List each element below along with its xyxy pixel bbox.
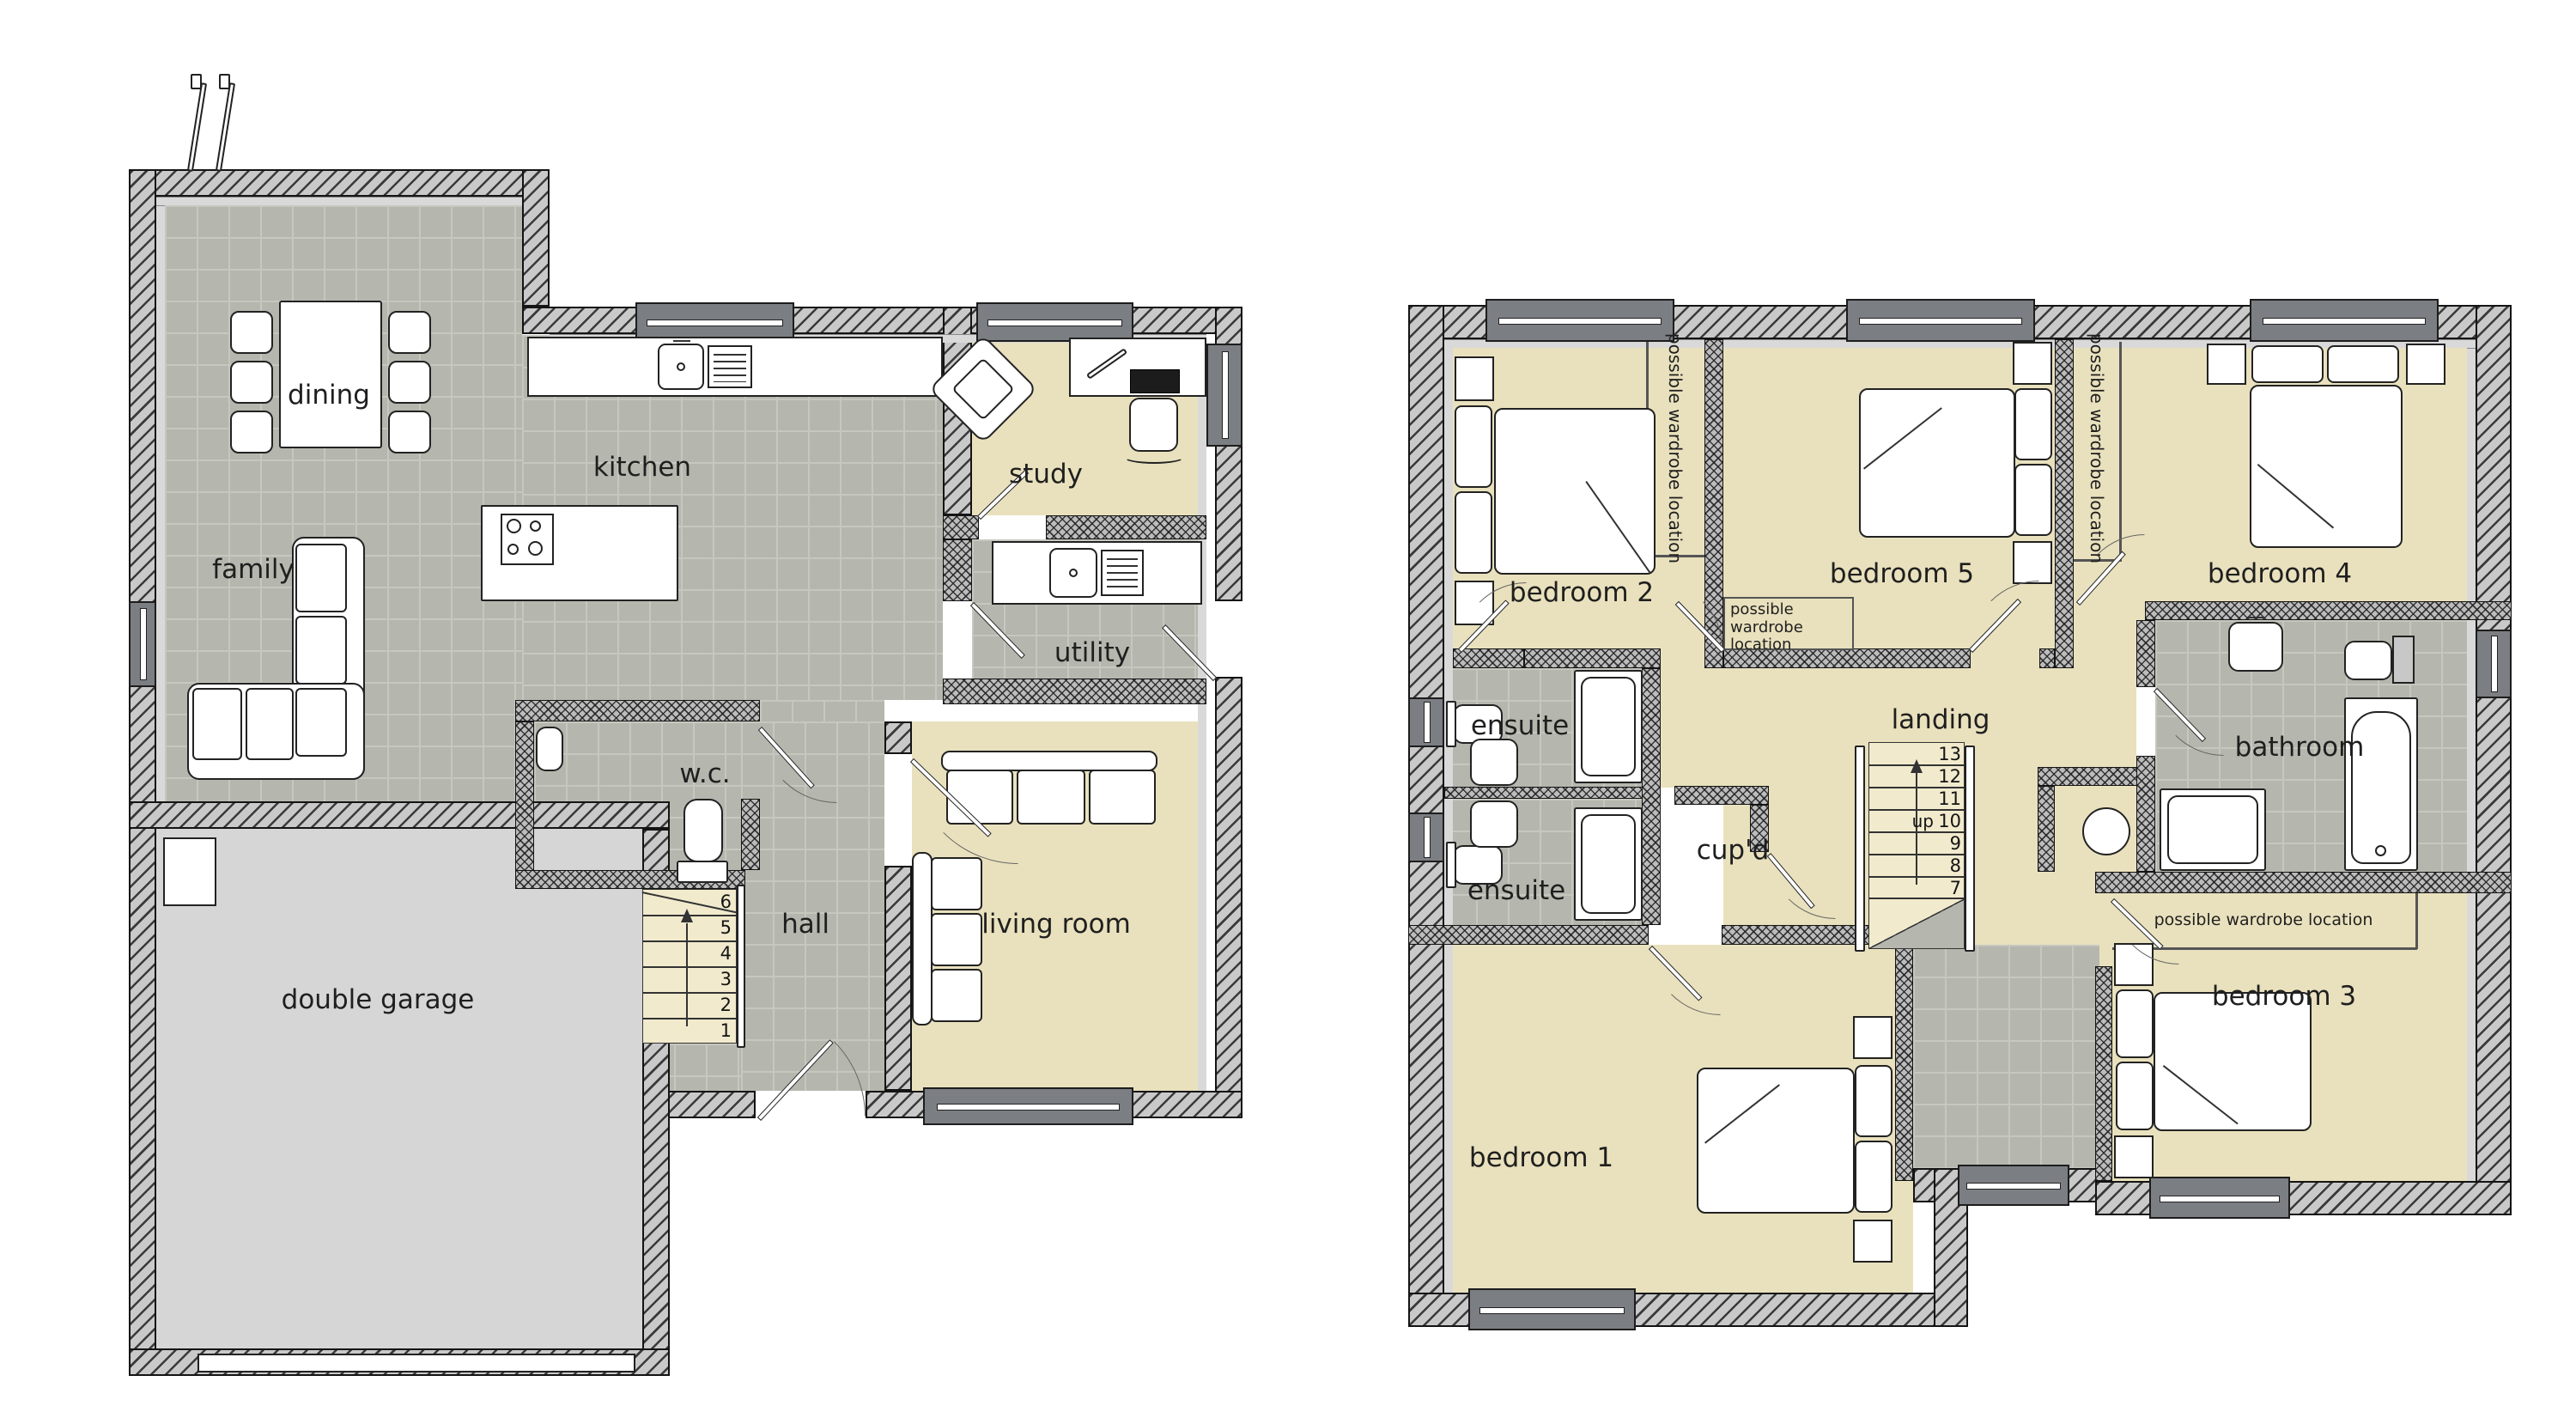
- hob-burner: [507, 519, 521, 533]
- bedside-table: [1455, 356, 1494, 401]
- window: [923, 1087, 1133, 1125]
- wall: [2136, 620, 2155, 687]
- wall: [2476, 305, 2512, 1215]
- bed-pillow: [1455, 405, 1492, 488]
- room-label-family: family: [212, 554, 295, 585]
- toilet-cistern: [2392, 636, 2415, 684]
- hob-burner: [528, 541, 543, 556]
- window: [1408, 697, 1444, 747]
- bath-drain: [2375, 845, 2386, 856]
- stair-step: [642, 940, 737, 942]
- shower-tray: [1581, 814, 1636, 914]
- window: [2476, 630, 2512, 698]
- hob-burner: [507, 544, 519, 555]
- stair-arrow: [686, 923, 688, 1026]
- room-label-bedroom-2: bedroom 2: [1510, 577, 1654, 608]
- bed-pillow: [2327, 345, 2399, 383]
- wall: [2095, 872, 2512, 893]
- toilet-cistern: [1446, 701, 1456, 747]
- sofa-cushion: [295, 544, 347, 612]
- bedside-table: [1853, 1220, 1893, 1263]
- stair-arrow-head: [681, 909, 693, 922]
- stair-number: 3: [720, 969, 732, 989]
- toilet: [2344, 641, 2392, 680]
- wall-lining: [1198, 343, 1206, 1091]
- wall: [129, 801, 670, 829]
- basin-tap-icon: [2247, 617, 2264, 618]
- garage-floor: [156, 829, 642, 1352]
- wall: [2145, 601, 2512, 620]
- wall: [515, 700, 760, 721]
- bed: [1494, 408, 1656, 575]
- bed: [1697, 1068, 1855, 1214]
- bedside-table: [2207, 344, 2246, 385]
- window: [1485, 299, 1674, 342]
- room-label-wc: w.c.: [679, 758, 730, 789]
- wall: [1444, 787, 1661, 799]
- stair-number: 10: [1938, 811, 1961, 831]
- stair-handrail: [1965, 746, 1975, 952]
- dining-chair: [230, 411, 273, 453]
- room-label-bedroom-4: bedroom 4: [2208, 558, 2352, 589]
- bed-pillow: [2251, 345, 2324, 383]
- room-label-bathroom: bathroom: [2235, 732, 2365, 763]
- stair-up-label: up: [1912, 811, 1934, 831]
- shower-tray: [1581, 677, 1636, 776]
- room-label-study: study: [1009, 459, 1083, 490]
- stair-number: 6: [720, 892, 732, 912]
- stair-handrail: [737, 885, 745, 1048]
- dining-chair: [388, 361, 431, 404]
- room-label-living-room: living room: [981, 909, 1131, 940]
- wall: [943, 679, 1206, 704]
- stair-handrail: [1855, 746, 1865, 952]
- wall: [943, 539, 972, 601]
- wardrobe-note: possible wardrobe location: [2087, 333, 2107, 563]
- wall: [522, 307, 1242, 334]
- room-label-utility: utility: [1054, 637, 1130, 668]
- living-sofa-back: [912, 852, 933, 1026]
- shower-tray: [2167, 795, 2258, 864]
- stair-number: 9: [1950, 833, 1961, 854]
- window: [1468, 1288, 1636, 1330]
- wall: [1642, 668, 1661, 925]
- stair-step: [642, 966, 737, 968]
- stair-number: 2: [720, 995, 732, 1015]
- stair-step: [642, 992, 737, 994]
- kitchen-tap-icon: [673, 340, 690, 342]
- stair-cut: [1868, 898, 1965, 949]
- floor-plan-canvas: 6 5 4 3 2 1 dining family kitchen study …: [0, 0, 2576, 1412]
- kitchen-tap-icon: [677, 362, 685, 371]
- bedside-table: [2406, 344, 2445, 385]
- room-label-hall: hall: [781, 909, 829, 940]
- dining-table: [279, 301, 382, 448]
- wall: [522, 169, 550, 307]
- bedside-table: [2013, 541, 2052, 584]
- wall-lining: [156, 205, 165, 801]
- garage-door: [197, 1354, 635, 1372]
- room-label-dining: dining: [288, 380, 370, 411]
- bed-pillow: [1455, 491, 1492, 574]
- wc-basin: [536, 727, 563, 771]
- room-label-double-garage: double garage: [282, 984, 475, 1015]
- stair-number: 12: [1938, 766, 1961, 787]
- stair-arrow-head: [1911, 759, 1923, 773]
- bed-pillow: [2014, 464, 2052, 536]
- wall-lining: [1444, 339, 1453, 1293]
- wall: [741, 799, 760, 870]
- wall-lining: [156, 197, 522, 205]
- stair-number: 4: [720, 943, 732, 964]
- bed-pillow: [1855, 1141, 1893, 1213]
- casement-window-icon: [187, 82, 207, 172]
- wall-lining: [2467, 348, 2476, 1181]
- utility-tap-icon: [1069, 569, 1078, 577]
- dining-chair: [388, 411, 431, 453]
- room-label-bedroom-5: bedroom 5: [1830, 558, 1974, 589]
- basin: [2228, 622, 2283, 672]
- sofa-cushion: [1089, 770, 1156, 825]
- bed-pillow: [1855, 1065, 1893, 1137]
- wall: [129, 169, 156, 1376]
- room-label-bedroom-1: bedroom 1: [1469, 1142, 1613, 1173]
- office-chair: [1129, 398, 1178, 452]
- wall: [1674, 786, 1769, 805]
- window: [1408, 813, 1444, 862]
- stair-number: 8: [1950, 855, 1961, 876]
- wardrobe-zone-line: [2119, 342, 2122, 561]
- hot-water-cylinder: [2082, 807, 2130, 855]
- wardrobe-note: possible wardrobe location: [2154, 910, 2373, 929]
- room-label-ensuite-top: ensuite: [1471, 710, 1569, 741]
- sofa-cushion: [1017, 770, 1085, 825]
- room-label-ensuite-bottom: ensuite: [1467, 875, 1565, 906]
- stairwell-void-floor: [1913, 945, 2099, 1181]
- stair-step: [642, 1018, 737, 1019]
- sofa-cushion: [246, 688, 294, 760]
- toilet-cistern: [1446, 842, 1456, 888]
- office-chair-base: [1123, 450, 1185, 464]
- stair-number: 13: [1938, 744, 1961, 764]
- bed-pillow: [2116, 989, 2154, 1058]
- utility-drainer: [1101, 550, 1144, 596]
- wall: [1524, 648, 1661, 668]
- dining-chair: [230, 311, 273, 354]
- bedside-table: [2013, 342, 2052, 385]
- sofa-cushion: [931, 857, 982, 910]
- wall: [2039, 648, 2055, 668]
- wall: [515, 721, 534, 889]
- wardrobe-zone-line: [2415, 893, 2418, 949]
- room-label-landing: landing: [1892, 704, 1990, 735]
- boiler: [163, 837, 216, 906]
- wall: [1215, 677, 1242, 1118]
- wall: [1408, 925, 1649, 945]
- bed-pillow: [2116, 1062, 2154, 1130]
- sofa-cushion: [931, 913, 982, 966]
- hob-burner: [530, 520, 541, 532]
- basin: [1470, 800, 1518, 848]
- wall: [2136, 756, 2155, 872]
- dining-chair: [230, 361, 273, 404]
- window: [1846, 299, 2035, 342]
- sofa-cushion: [295, 616, 347, 685]
- wall: [2095, 966, 2112, 1181]
- wall: [1046, 515, 1206, 539]
- wall: [2055, 339, 2074, 668]
- sofa-cushion: [295, 688, 347, 757]
- kitchen-hall-passage-floor: [760, 700, 884, 721]
- keyboard: [1130, 369, 1180, 393]
- basin: [1470, 739, 1518, 786]
- stair-number: 1: [720, 1020, 732, 1041]
- sofa-cushion: [192, 688, 242, 760]
- bedroom2-approach-floor: [1661, 668, 1723, 788]
- sofa-cushion: [931, 969, 982, 1022]
- dining-chair: [388, 311, 431, 354]
- window: [2250, 299, 2439, 342]
- casement-window-icon: [216, 82, 235, 172]
- wall: [129, 169, 550, 197]
- window: [1206, 344, 1242, 447]
- wardrobe-note: possible wardrobe location: [1730, 601, 1850, 654]
- kitchen-drainer: [708, 345, 752, 388]
- stair-number: 5: [720, 917, 732, 938]
- wall: [1453, 648, 1524, 668]
- window: [2149, 1177, 2290, 1219]
- toilet-cistern: [677, 861, 728, 883]
- window: [129, 601, 156, 687]
- bedside-table: [1853, 1016, 1893, 1059]
- wall: [943, 515, 979, 539]
- wall: [884, 721, 912, 754]
- room-label-kitchen: kitchen: [593, 452, 691, 483]
- stair-number: 11: [1938, 788, 1961, 809]
- bedside-table: [2114, 1135, 2154, 1178]
- bed: [2154, 992, 2312, 1131]
- wardrobe-note: possible wardrobe location: [1665, 333, 1686, 563]
- wall: [884, 866, 912, 1091]
- bed-pillow: [2014, 388, 2052, 460]
- wall: [1895, 945, 1913, 1181]
- room-label-cupboard: cup'd: [1697, 835, 1770, 866]
- wall: [2038, 786, 2055, 872]
- stair-number: 7: [1950, 878, 1961, 898]
- window: [1958, 1165, 2069, 1206]
- room-label-bedroom-3: bedroom 3: [2212, 981, 2356, 1012]
- toilet: [683, 799, 723, 862]
- window: [976, 302, 1133, 342]
